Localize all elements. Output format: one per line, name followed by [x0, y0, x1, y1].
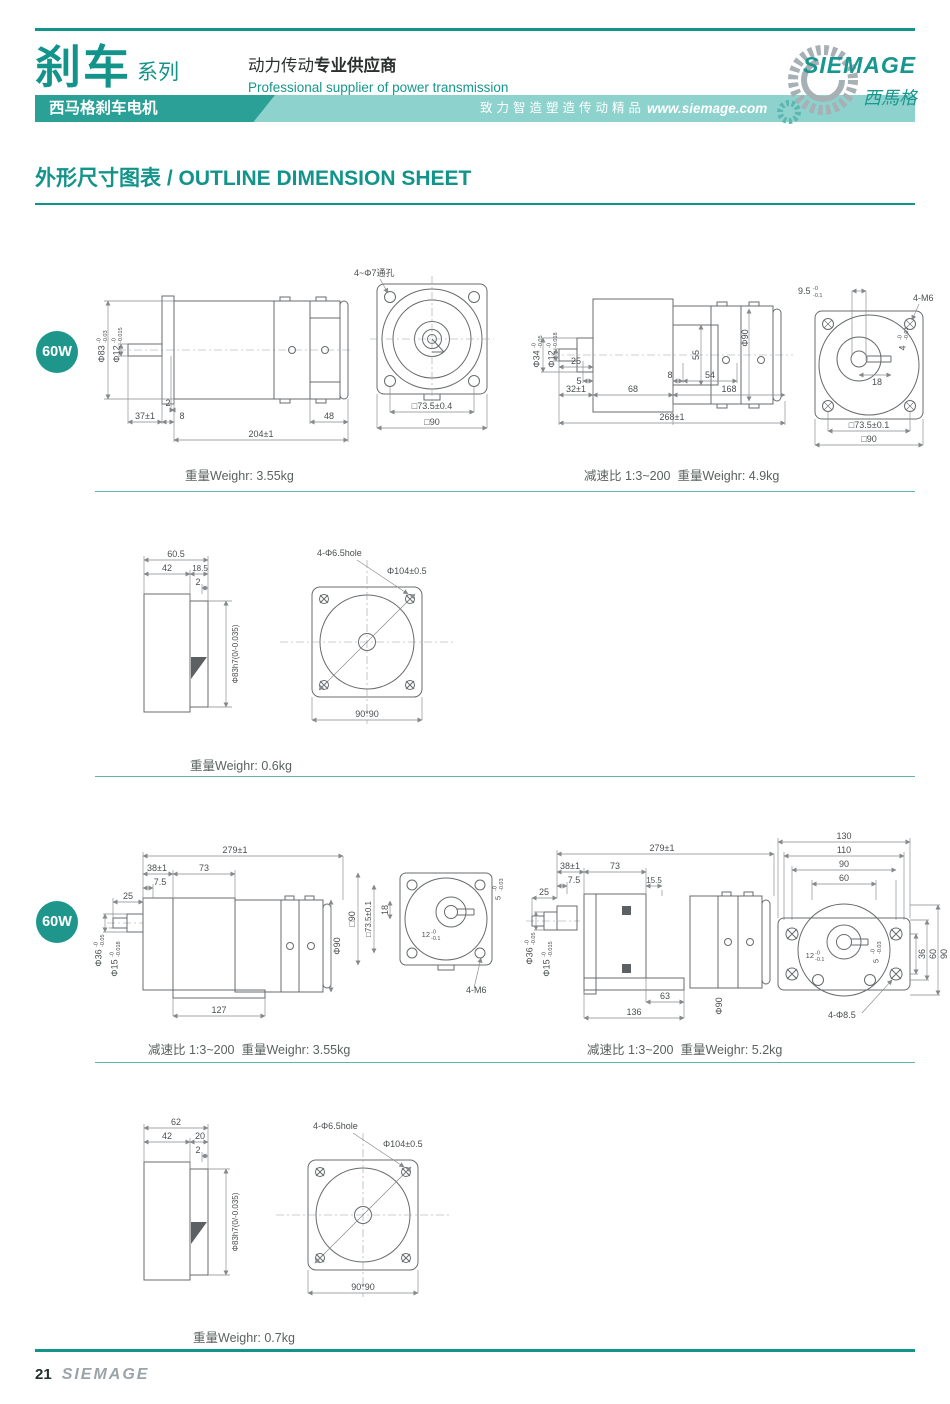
dim-dia83-tol-bot: -0.03	[103, 330, 109, 343]
supplier-line-en: Professional supplier of power transmiss…	[248, 80, 508, 95]
dim-total: 279±1	[223, 845, 248, 855]
dim-key: 4	[898, 345, 908, 350]
dim-square: □90	[861, 434, 876, 444]
dim-holes-label: 4-Φ6.5hole	[317, 548, 362, 558]
dim-dia15-tol-top: -0	[110, 952, 116, 957]
dim-n63: 63	[660, 991, 670, 1001]
dim-n25: 25	[539, 887, 549, 897]
dim-dia15: Φ15	[110, 959, 120, 976]
dim-n25: 25	[123, 891, 133, 901]
dim-dia36: Φ36	[94, 949, 104, 966]
dim-n75: 7.5	[568, 875, 581, 885]
drawing-gearmotor2-side-view: 279±1 38±1 73 7.5 25 Φ36 -0 -0.05 Φ15 -0…	[85, 840, 350, 1035]
dim-key-d-tol-top: -0	[871, 949, 877, 954]
dim-n95-tol-top: -0	[813, 286, 818, 292]
dim-n42: 42	[162, 1131, 172, 1141]
supplier-cn-bold: 专业供应商	[314, 57, 397, 75]
dim-n25: 25	[571, 356, 581, 366]
dim-dia34-tol-bot: -0.05	[538, 335, 544, 348]
drawing-gearmotor2-front-view: □90 □73.5±0.1 18 12 -0 -0.1 5 -0 -0.03 4…	[338, 855, 508, 1010]
dim-dia15-tol-bot: -0.015	[548, 941, 554, 957]
dim-n168: 168	[721, 384, 736, 394]
dim-n60: 60	[839, 873, 849, 883]
page-number: 21	[35, 1366, 52, 1383]
dim-n130: 130	[836, 831, 851, 841]
series-title-cn: 刹车	[35, 44, 131, 90]
dim-key-w-tol-bot: -0.1	[815, 957, 824, 963]
dim-n8: 8	[667, 370, 672, 380]
dim-pitch: □73.5±0.1	[849, 420, 889, 430]
dim-lip: 2	[165, 398, 170, 408]
dim-n62: 62	[171, 1117, 181, 1127]
dim-n18: 18	[380, 905, 390, 915]
dim-n54: 54	[705, 370, 715, 380]
dim-key-tol-top: -0	[898, 335, 904, 340]
supplier-cn-regular: 动力传动	[248, 57, 314, 75]
dim-dia36-tol-bot: -0.05	[100, 934, 106, 947]
dim-dia36-tol-top: -0	[525, 940, 531, 945]
dim-dia12-tol-bot: -0.018	[553, 332, 559, 348]
drawing-brake-flange-view: 4-Φ6.5hole Φ104±0.5 90*90	[262, 540, 472, 735]
banner-slogan: 致力智造塑造传动精品	[480, 95, 645, 122]
section-divider-1	[95, 491, 915, 492]
dim-n2: 2	[195, 1145, 200, 1155]
dim-pitch: □73.5±0.4	[412, 401, 452, 411]
supplier-line-cn: 动力传动专业供应商	[248, 52, 508, 76]
dim-n38: 38±1	[560, 861, 580, 871]
dim-dia34-tol-top: -0	[532, 343, 538, 348]
caption-weight-row1-left: 重量Weighr: 3.55kg	[185, 465, 294, 484]
dim-dia15-tol-top: -0	[542, 952, 548, 957]
dim-dia36-tol-top: -0	[94, 942, 100, 947]
drawing-gearmotor-front-view: 9.5 -0 -0.1 4 -0 -0.03 18 □73.5±0.1 □90 …	[793, 263, 948, 453]
dim-square: □90	[347, 911, 357, 926]
dim-n185: 18.5	[192, 564, 208, 573]
dim-total: 279±1	[650, 843, 675, 853]
series-title-suffix: 系列	[137, 56, 179, 86]
page-footer: 21 SIEMAGE	[35, 1366, 149, 1384]
dim-n55: 55	[691, 350, 701, 360]
footer-brand: SIEMAGE	[62, 1366, 150, 1384]
dim-dia90: Φ90	[740, 329, 750, 346]
caption-weight-row4: 重量Weighr: 0.7kg	[193, 1327, 295, 1346]
dim-dia12-tol-top: -0	[547, 343, 553, 348]
drawing-motor-front-view: 4~Φ7通孔 □73.5±0.4 □90	[352, 266, 502, 446]
caption-weight-row3-right: 减速比 1:3~200 重量Weighr: 5.2kg	[587, 1039, 782, 1058]
dim-key-d-tol-bot: -0.03	[877, 941, 883, 954]
page-title: 外形尺寸图表 / OUTLINE DIMENSION SHEET	[35, 162, 471, 192]
series-title: 刹车 系列	[35, 44, 179, 90]
siemage-logo: SIEMAGE 西馬格	[775, 30, 950, 126]
bottom-rule	[35, 1349, 915, 1352]
power-badge-row1: 60W	[36, 331, 78, 373]
dim-key-w-tol-top: -0	[431, 930, 436, 936]
dim-shaft-len: 37±1	[135, 411, 155, 421]
dim-square: 90*90	[351, 1282, 375, 1292]
logo-chinese: 西馬格	[863, 84, 917, 110]
logo-wordmark: SIEMAGE	[803, 52, 916, 79]
dim-tap: 4-M6	[913, 293, 934, 303]
dim-key-d: 5	[494, 896, 503, 900]
dim-square: □90	[424, 417, 439, 427]
drawing-brake2-flange-view: 4-Φ6.5hole Φ104±0.5 90*90	[258, 1113, 468, 1308]
section-divider-2	[95, 776, 915, 777]
banner-url[interactable]: www.siemage.com	[647, 95, 767, 122]
dim-n68: 68	[628, 384, 638, 394]
banner-product-label: 西马格刹车电机	[35, 95, 275, 122]
dim-key-d: 5	[872, 959, 881, 963]
dim-n73: 73	[610, 861, 620, 871]
dim-flange: 8	[179, 411, 184, 421]
drawing-gearmotor-side-view: 55 Φ90 Φ34 -0 -0.05 Φ12 -0 -0.018 25 5 3…	[523, 263, 803, 458]
section-divider-3	[95, 1062, 915, 1063]
dim-n155: 15.5	[646, 876, 662, 885]
dim-n38: 38±1	[147, 863, 167, 873]
dim-dia90: Φ90	[714, 997, 724, 1014]
dim-key-w-tol-top: -0	[815, 951, 820, 957]
dim-spigot: Φ83h7(0/-0.035)	[231, 624, 240, 683]
dim-holes-label: 4-Φ6.5hole	[313, 1121, 358, 1131]
dim-v60: 60	[928, 949, 938, 959]
dim-rear: 48	[324, 411, 334, 421]
dim-v90: 90	[939, 949, 949, 959]
dim-n32: 32±1	[566, 384, 586, 394]
dim-n2: 2	[195, 577, 200, 587]
dim-n127: 127	[211, 1005, 226, 1015]
dim-bolt-circle: Φ104±0.5	[383, 1139, 423, 1149]
dim-tap: 4-M6	[466, 985, 487, 995]
dim-dia83: Φ83	[97, 345, 107, 362]
dim-dia12: Φ12	[547, 350, 557, 367]
dim-holes-label: 4~Φ7通孔	[354, 268, 394, 278]
dim-dia36: Φ36	[525, 947, 535, 964]
dim-dia34: Φ34	[532, 350, 542, 367]
supplier-block: 动力传动专业供应商 Professional supplier of power…	[248, 52, 508, 95]
dim-total: 204±1	[249, 429, 274, 439]
dim-dia12: Φ12	[112, 345, 122, 362]
dim-n73: 73	[199, 863, 209, 873]
dim-dia15-tol-bot: -0.018	[116, 941, 122, 957]
drawing-motor-side-view: Φ83 -0 -0.03 Φ12 -0 -0.015 2 37±1 8 48 2…	[88, 272, 358, 457]
dim-square: 90*90	[355, 709, 379, 719]
dim-n95: 9.5	[798, 286, 811, 296]
dim-dia15: Φ15	[542, 959, 552, 976]
dim-key-d-tol-top: -0	[493, 886, 499, 891]
drawing-bracket-front-view: 130 110 90 60 36 60 90 12 -0 -0.1 5 -0 -…	[770, 830, 950, 1030]
dim-n18: 18	[872, 377, 882, 387]
dim-key-w: 12	[422, 930, 430, 939]
power-badge-row3: 60W	[36, 901, 78, 943]
dim-dia12-tol-bot: -0.015	[118, 327, 124, 343]
caption-weight-row1-right: 减速比 1:3~200 重量Weighr: 4.9kg	[584, 465, 779, 484]
dim-n605: 60.5	[167, 549, 185, 559]
dim-key-tol-bot: -0.03	[904, 327, 910, 340]
drawing-bracket-gearmotor-side-view: 279±1 38±1 73 7.5 15.5 25 Φ36 -0 -0.05 Φ…	[522, 838, 782, 1038]
dim-n136: 136	[626, 1007, 641, 1017]
dim-n75: 7.5	[154, 877, 167, 887]
dim-v36: 36	[917, 949, 927, 959]
dim-dia12-tol-top: -0	[112, 338, 118, 343]
caption-weight-row3-left: 减速比 1:3~200 重量Weighr: 3.55kg	[148, 1039, 350, 1058]
dim-n110: 110	[837, 845, 851, 855]
dim-pitch: □73.5±0.1	[364, 900, 373, 936]
dim-n42: 42	[162, 563, 172, 573]
dim-dia83-tol-top: -0	[97, 338, 103, 343]
dim-holes-label: 4-Φ8.5	[828, 1010, 856, 1020]
dim-bolt-circle: Φ104±0.5	[387, 566, 427, 576]
dim-key-w: 12	[806, 951, 814, 960]
dim-n95-tol-bot: -0.1	[813, 293, 822, 299]
title-rule	[35, 203, 915, 205]
dim-spigot: Φ83h7(0/-0.035)	[231, 1192, 240, 1251]
dim-n20: 20	[195, 1131, 205, 1141]
dim-n90: 90	[839, 859, 849, 869]
dim-key-w-tol-bot: -0.1	[431, 936, 440, 942]
caption-weight-row2: 重量Weighr: 0.6kg	[190, 755, 292, 774]
dim-key-d-tol-bot: -0.03	[499, 878, 505, 891]
dim-total: 268±1	[660, 412, 685, 422]
dim-dia36-tol-bot: -0.05	[531, 932, 537, 945]
